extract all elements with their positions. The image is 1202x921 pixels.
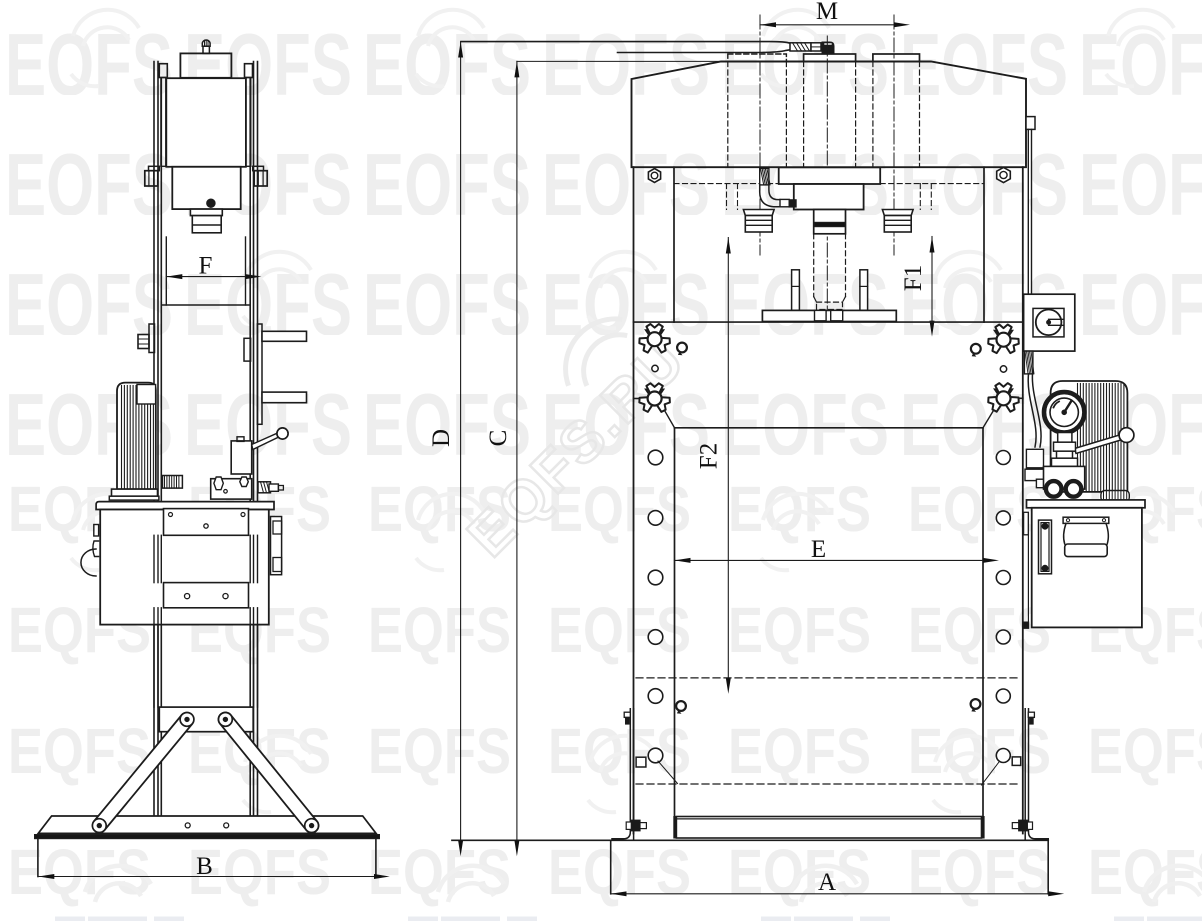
svg-text:C: C — [485, 430, 512, 447]
svg-text:D: D — [428, 429, 455, 447]
svg-text:F: F — [199, 253, 213, 280]
svg-text:M: M — [816, 0, 838, 25]
svg-text:B: B — [196, 853, 213, 880]
svg-text:F2: F2 — [696, 443, 723, 469]
svg-text:F1: F1 — [900, 265, 927, 291]
svg-text:A: A — [818, 869, 836, 896]
svg-text:E: E — [811, 536, 826, 563]
